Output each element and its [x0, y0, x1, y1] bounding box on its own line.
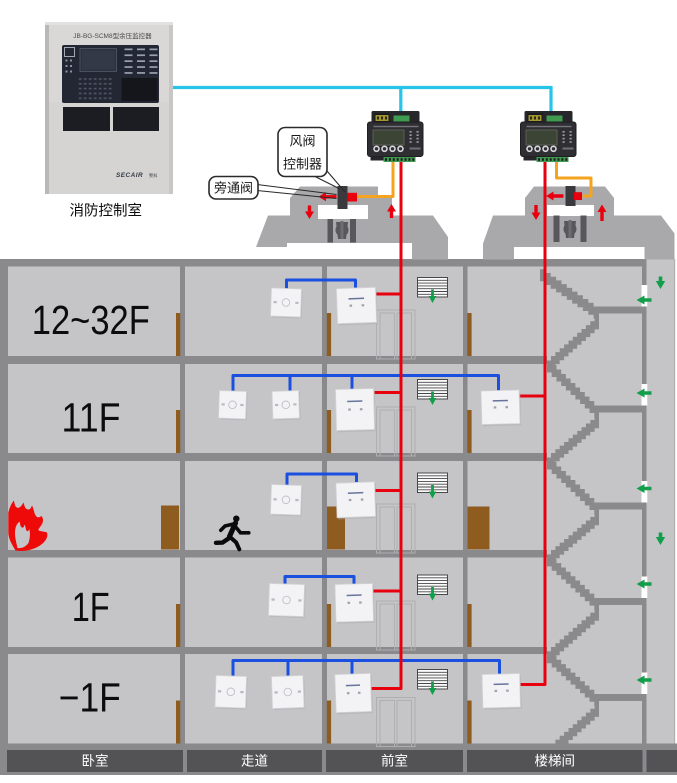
svg-text:控制器: 控制器 [283, 157, 322, 172]
svg-text:SECAIR: SECAIR [116, 172, 143, 179]
svg-text:消防控制室: 消防控制室 [70, 202, 143, 219]
svg-text:楼梯间: 楼梯间 [535, 754, 576, 769]
svg-text:前室: 前室 [381, 753, 408, 769]
svg-text:旁通阀: 旁通阀 [214, 181, 253, 196]
svg-text:−1F: −1F [59, 675, 121, 721]
svg-text:警科: 警科 [149, 172, 158, 179]
svg-text:1F: 1F [72, 584, 110, 630]
svg-text:卧室: 卧室 [82, 753, 109, 769]
svg-text:12~32F: 12~32F [32, 297, 150, 343]
svg-text:走道: 走道 [241, 754, 268, 769]
svg-text:风阀: 风阀 [289, 134, 315, 149]
svg-text:11F: 11F [62, 395, 121, 441]
svg-text:JB-BG-SCM8型余压监控器: JB-BG-SCM8型余压监控器 [73, 31, 152, 40]
